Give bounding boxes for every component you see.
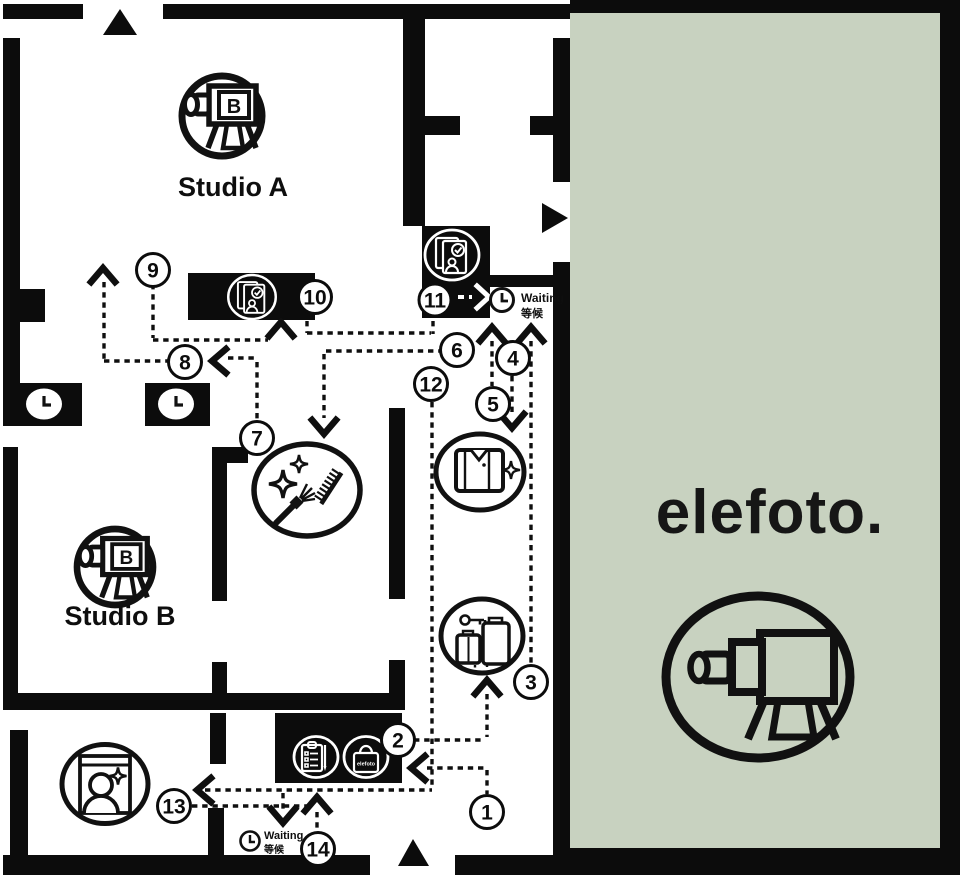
route-stop-2: 2 [382,724,415,757]
wall-segment [488,275,570,287]
retouch-photo-icon [62,745,148,824]
svg-text:13: 13 [162,796,185,819]
wall-segment [212,662,227,693]
svg-text:7: 7 [251,428,263,451]
wall-segment [10,730,28,857]
waiting-label-en: Waiting [521,291,564,305]
wall-segment [3,693,405,710]
wall-segment [553,38,570,182]
studio-a-camera-icon [182,76,262,156]
studio-b-camera-icon [77,529,153,605]
svg-text:9: 9 [147,260,159,283]
wall-segment [208,808,224,855]
studio-a-label: Studio A [178,172,288,202]
wall-segment [210,713,226,764]
bag-label: elefoto [357,762,376,768]
route-stop-5: 5 [477,388,510,421]
route-stop-9: 9 [137,254,170,287]
wall-segment [3,447,18,693]
svg-text:3: 3 [525,672,537,695]
svg-text:11: 11 [424,290,447,313]
wall-segment [530,116,553,135]
route-stop-14: 14 [302,833,335,866]
route-stop-13: 13 [158,790,191,823]
clock-sign-left [3,383,82,426]
svg-text:8: 8 [179,352,191,375]
makeup-icon [254,444,360,536]
wall-segment [389,660,405,693]
route-stop-12: 12 [415,368,448,401]
wall-segment [553,262,570,855]
floorplan-svg: B elefoto. [0,0,960,875]
svg-text:6: 6 [451,340,463,363]
svg-text:1: 1 [481,802,493,825]
wall-segment [3,4,83,19]
wall-segment [20,289,45,322]
svg-text:4: 4 [507,348,519,371]
brand-panel-border-bottom [570,846,960,875]
svg-text:5: 5 [487,394,499,417]
svg-text:10: 10 [303,287,326,310]
floorplan: B elefoto. [0,0,960,875]
wall-segment [389,408,405,599]
studio-b-label: Studio B [65,601,176,631]
waiting-label-en: Waiting [264,830,303,842]
route-stop-1: 1 [471,796,504,829]
route-stop-8: 8 [169,346,202,379]
wardrobe-icon [436,434,524,510]
route-stop-11: 11 [419,284,451,316]
brand-panel-border-right [938,0,960,875]
route-stop-3: 3 [515,666,548,699]
wall-segment [425,116,460,135]
svg-text:12: 12 [419,374,442,397]
route-stop-4: 4 [497,342,530,375]
wall-segment [403,19,425,226]
route-stop-10: 10 [299,281,332,314]
waiting-label-zh: 等候 [520,306,544,320]
wall-segment [212,447,227,601]
wall-segment [3,38,20,424]
svg-text:14: 14 [306,839,330,862]
wall-segment [163,4,570,19]
svg-text:2: 2 [392,730,404,753]
brand-panel: elefoto. [570,0,960,875]
wall-segment [455,855,570,875]
waiting-label-zh: 等候 [264,843,285,856]
route-stop-7: 7 [241,422,274,455]
brand-wordmark: elefoto. [656,478,884,547]
route-stop-6: 6 [441,334,474,367]
brand-panel-border-top [570,0,960,14]
clock-sign-right [145,383,210,426]
luggage-icon [441,599,523,673]
